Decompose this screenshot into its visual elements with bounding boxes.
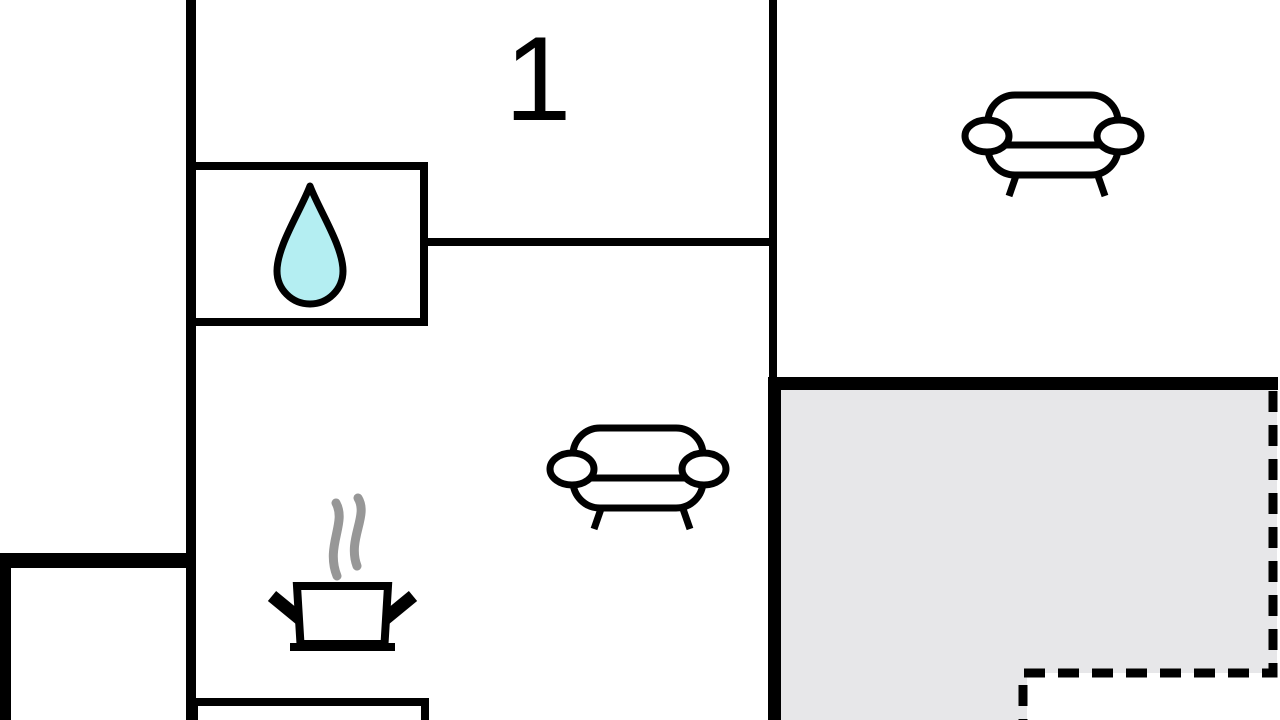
room-number-label: 1 (505, 12, 572, 146)
terrace-left-wall (768, 377, 781, 720)
sofa-armrest-right (682, 453, 726, 485)
wall-right-vertical-top (769, 0, 777, 384)
floorplan-page: 1 (0, 0, 1280, 720)
pot-body (297, 586, 388, 644)
sofa-armrest-left (965, 120, 1009, 152)
kitchen-counter-box (194, 702, 425, 720)
sofa-armrest-left (550, 453, 594, 485)
floorplan-canvas: 1 (0, 0, 1280, 720)
wall-bottom-left-horizontal (0, 553, 196, 568)
sofa-armrest-right (1097, 120, 1141, 152)
terrace-top-wall (768, 377, 1278, 390)
wall-left-vertical (186, 0, 196, 720)
wall-left-edge (0, 553, 11, 720)
